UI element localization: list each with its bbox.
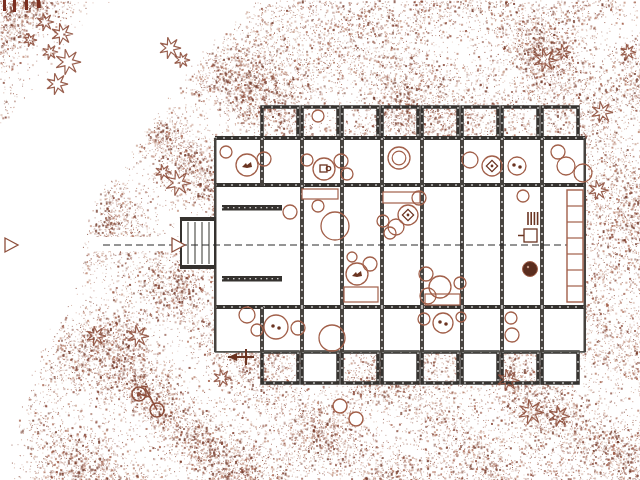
bicycle-frame xyxy=(139,394,157,410)
tree-icon xyxy=(128,325,149,347)
top-terrace-bay-tick xyxy=(542,107,578,138)
site-plan xyxy=(0,0,640,480)
tree-icon xyxy=(556,44,571,60)
tree-icon xyxy=(549,405,570,426)
table-dot xyxy=(491,165,494,168)
bottom-terrace-bay xyxy=(502,352,538,383)
interior-wall-mid xyxy=(540,185,544,307)
tree-icon xyxy=(37,13,54,31)
fence-post xyxy=(3,0,6,11)
pot-icon xyxy=(523,262,538,277)
dock-rail xyxy=(181,265,215,269)
dock-bridge xyxy=(181,218,215,268)
top-terrace-bay xyxy=(422,107,458,138)
top-terrace-bay xyxy=(502,107,538,138)
bottom-terrace-bay xyxy=(302,352,338,383)
ladder-shelf xyxy=(567,190,583,302)
bottom-terrace-bay-tick xyxy=(502,352,538,383)
top-terrace-bay-tick xyxy=(342,107,378,138)
furniture-rect xyxy=(344,287,378,302)
interior-wall-lower xyxy=(380,307,384,352)
bush-icon xyxy=(333,399,347,413)
tree-icon xyxy=(519,399,544,424)
tree-icon xyxy=(24,33,37,47)
bottom-terrace-bay xyxy=(422,352,458,383)
tree-icon xyxy=(592,101,613,122)
dock-rail xyxy=(181,217,215,221)
seat-dot xyxy=(438,320,442,324)
bottom-terrace-bay xyxy=(382,352,418,383)
seat-dot xyxy=(271,324,275,328)
top-terrace-bay xyxy=(342,107,378,138)
furniture-rect xyxy=(383,192,420,203)
section-arrow-icon xyxy=(5,238,18,252)
seat-dot xyxy=(444,322,448,326)
top-terrace-bay-tick xyxy=(382,107,418,138)
plan-svg xyxy=(0,0,640,480)
bicycle-seat xyxy=(141,386,148,387)
top-terrace-bay xyxy=(262,107,298,138)
seat-dot xyxy=(277,326,281,330)
tree-icon xyxy=(175,52,190,68)
furniture-circle xyxy=(312,110,324,122)
interior-wall-mid xyxy=(500,185,504,307)
top-terrace-bay-tick xyxy=(502,107,538,138)
sink-icon xyxy=(524,229,537,242)
pot-highlight xyxy=(527,266,529,268)
seat-dot xyxy=(518,165,522,169)
table-dot xyxy=(407,214,410,217)
marker-arrow-head xyxy=(228,353,237,361)
bottom-terrace-bay-tick xyxy=(262,352,298,383)
fence-post xyxy=(25,0,28,10)
tree-icon xyxy=(56,49,81,74)
interior-wall-lower xyxy=(500,307,504,352)
tree-icon xyxy=(47,73,68,94)
bush-icon xyxy=(349,412,363,426)
tree-icon xyxy=(214,369,231,387)
tree-icon xyxy=(160,37,181,59)
wall-side xyxy=(584,138,587,352)
bottom-terrace-bay xyxy=(542,352,578,383)
interior-wall-mid xyxy=(340,185,344,307)
bottom-terrace-bay xyxy=(462,352,498,383)
fence-post xyxy=(13,0,16,12)
bottom-terrace-bay-tick xyxy=(342,352,378,383)
furniture-rect xyxy=(302,189,338,199)
top-terrace-bay-tick xyxy=(262,107,298,138)
top-terrace-bay xyxy=(542,107,578,138)
bottom-terrace-bay-tick xyxy=(422,352,458,383)
interior-wall-lower xyxy=(460,307,464,352)
tree-icon xyxy=(589,180,608,200)
top-terrace-bay-tick xyxy=(462,107,498,138)
facade-line xyxy=(215,351,585,353)
tree-icon xyxy=(534,48,557,71)
tree-icon xyxy=(87,326,106,346)
seat-dot xyxy=(512,163,516,167)
interior-wall-mid xyxy=(300,185,304,307)
tree-icon xyxy=(166,170,191,195)
interior-wall-lower xyxy=(540,307,544,352)
bottom-terrace-bay xyxy=(342,352,378,383)
interior-wall-lower xyxy=(300,307,304,352)
top-terrace-bay-tick xyxy=(422,107,458,138)
fence-post xyxy=(37,0,40,8)
top-terrace-bay xyxy=(382,107,418,138)
bottom-terrace-bay xyxy=(262,352,298,383)
tree-icon xyxy=(43,44,58,60)
top-terrace-bay xyxy=(462,107,498,138)
tree-icon xyxy=(621,44,636,60)
tree-icon xyxy=(52,23,73,44)
